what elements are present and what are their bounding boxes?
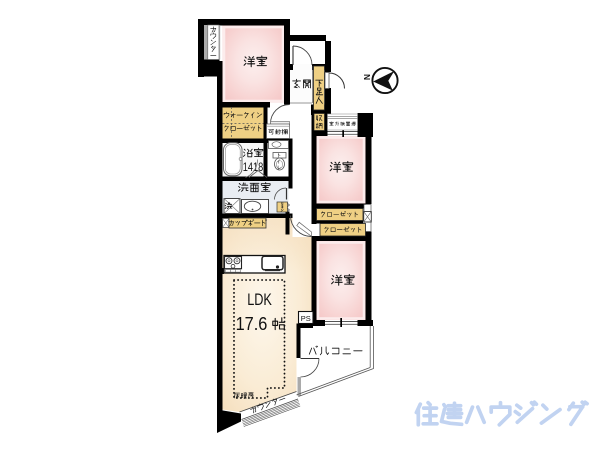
svg-text:LDK: LDK [247,291,272,309]
svg-text:17.6: 17.6 [236,313,268,334]
svg-text:N: N [362,74,372,80]
svg-text:PS: PS [301,314,311,323]
